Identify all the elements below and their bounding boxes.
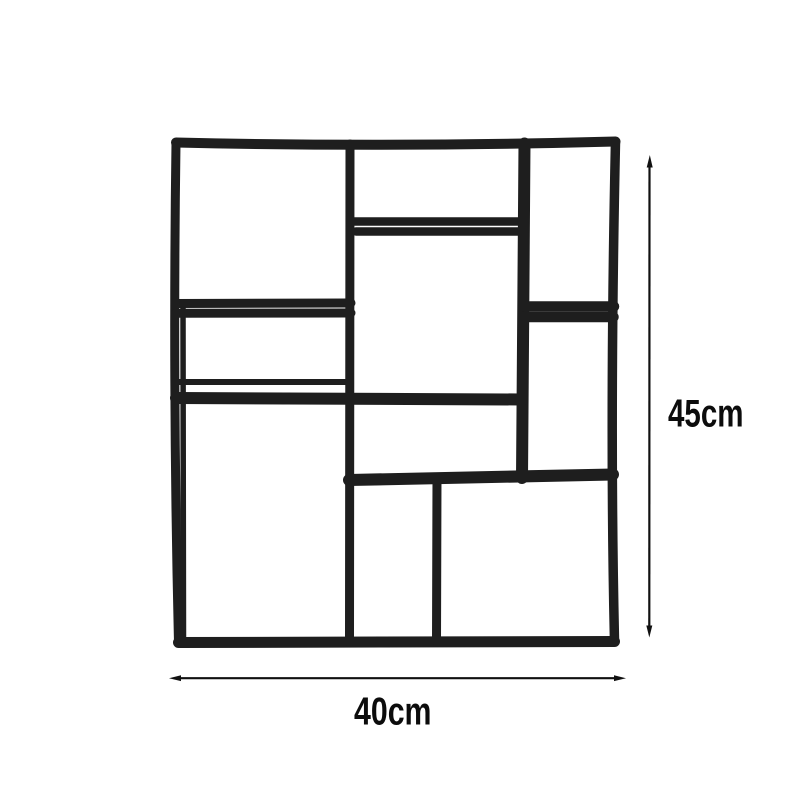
svg-text:45cm: 45cm: [668, 393, 744, 436]
svg-text:40cm: 40cm: [354, 691, 432, 734]
